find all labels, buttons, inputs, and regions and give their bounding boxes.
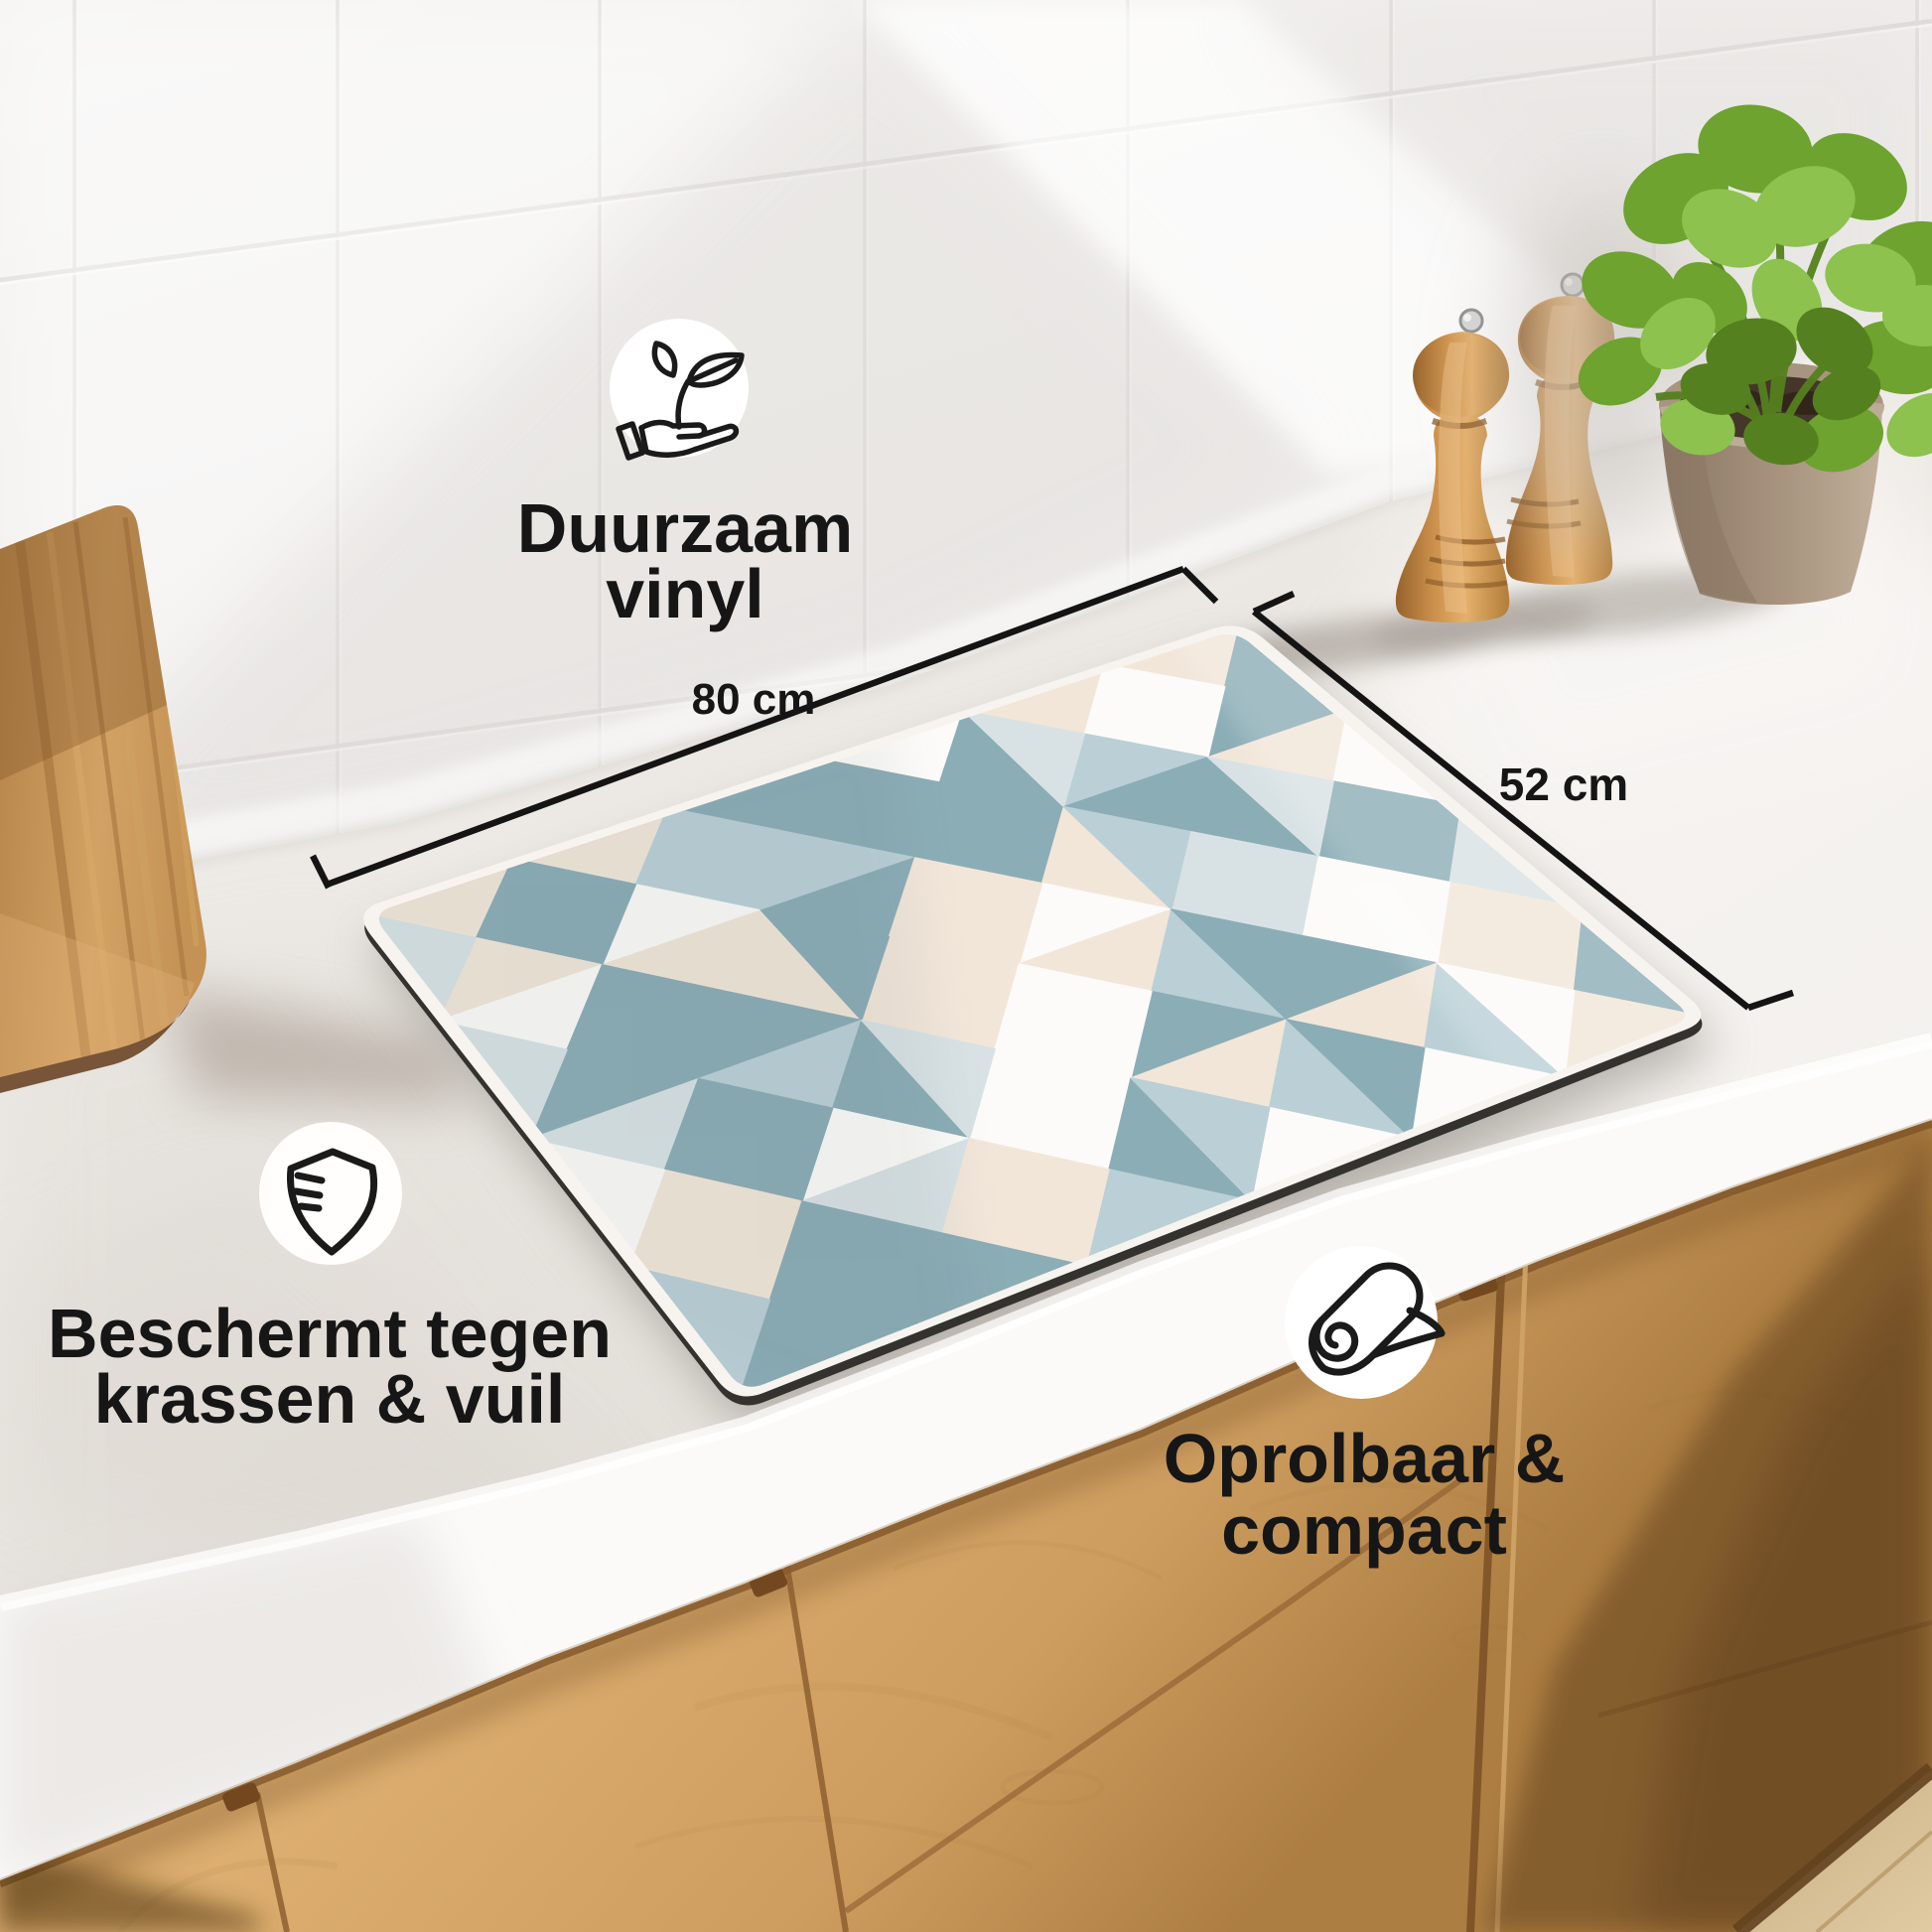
svg-text:Oprolbaar &: Oprolbaar &	[1164, 1420, 1566, 1497]
svg-text:compact: compact	[1221, 1491, 1507, 1569]
svg-text:80 cm: 80 cm	[692, 675, 816, 724]
svg-text:52 cm: 52 cm	[1499, 759, 1628, 810]
svg-text:vinyl: vinyl	[606, 555, 764, 632]
svg-text:krassen & vuil: krassen & vuil	[94, 1360, 566, 1438]
